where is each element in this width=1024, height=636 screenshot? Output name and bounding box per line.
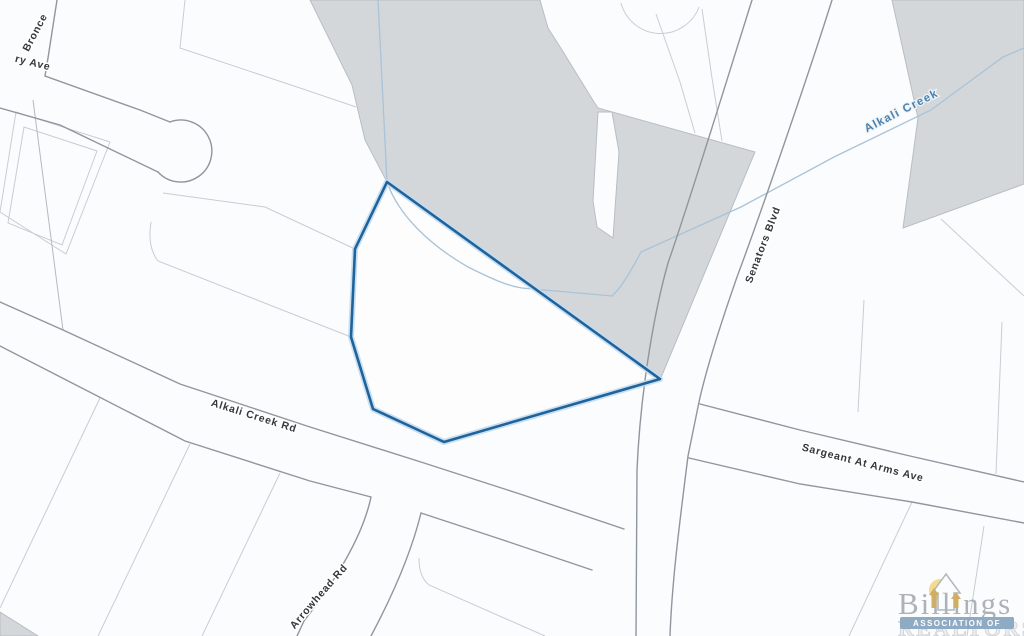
map-canvas[interactable]: Bronce ry Ave Alkali Creek Rd Senators B…	[0, 0, 1024, 636]
parcel-map-svg[interactable]: Bronce ry Ave Alkali Creek Rd Senators B…	[0, 0, 1024, 636]
logo-banner-text: ASSOCIATION OF	[913, 619, 1001, 628]
